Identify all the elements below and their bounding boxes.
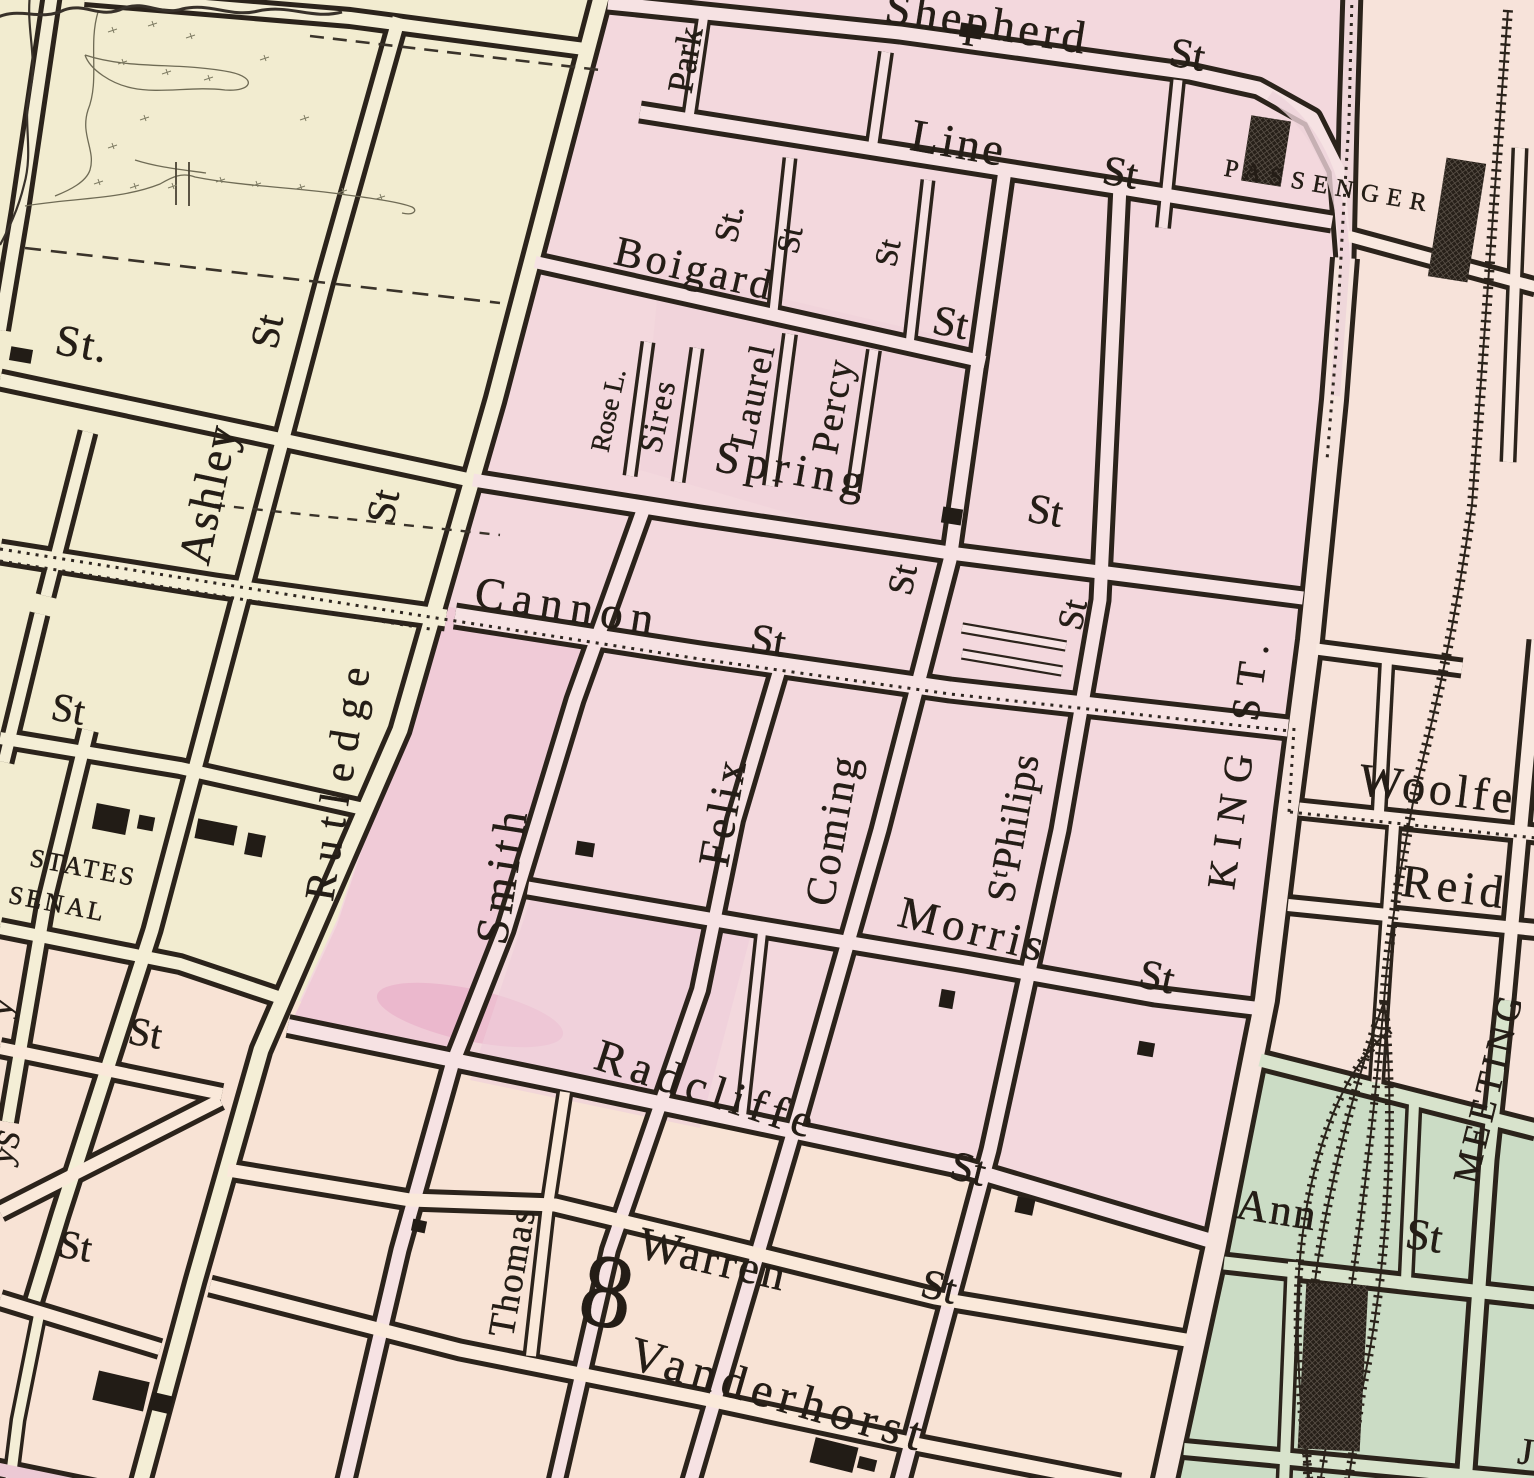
svg-text:St.: St. <box>708 202 752 246</box>
svg-text:St: St <box>747 616 789 667</box>
svg-text:St.: St. <box>52 315 113 373</box>
svg-text:St: St <box>1402 1209 1446 1263</box>
